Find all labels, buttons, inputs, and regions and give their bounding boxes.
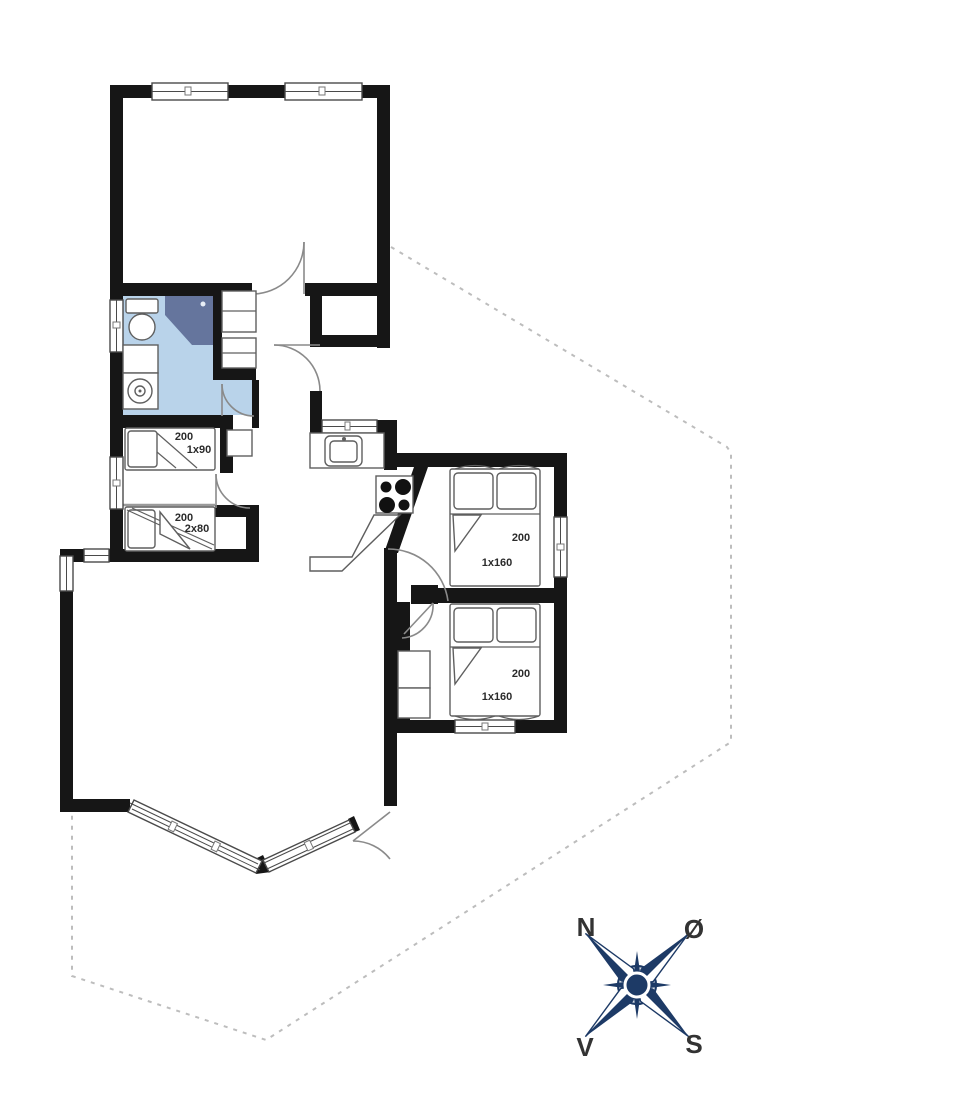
bed-length-label: 200 bbox=[512, 532, 530, 544]
entrance-door bbox=[274, 345, 320, 391]
south-bedroom-closets bbox=[398, 651, 430, 718]
bed-length-label: 200 bbox=[175, 431, 193, 443]
bed-length-label: 200 bbox=[512, 668, 530, 680]
compass-center bbox=[625, 973, 649, 997]
compass-label-south: S bbox=[685, 1029, 702, 1059]
shower-head-icon bbox=[201, 302, 206, 307]
bed-size-label: 1x160 bbox=[482, 691, 513, 703]
washing-machine-icon bbox=[123, 373, 158, 409]
toilet-icon bbox=[126, 299, 158, 340]
compass-rose bbox=[579, 927, 695, 1043]
kitchen-sink-icon bbox=[325, 436, 362, 466]
floor-plan-page: 200 1x90 200 2x80 200 1x160 200 1x160 bbox=[0, 0, 960, 1116]
stove-icon bbox=[376, 476, 413, 513]
bathroom-counter bbox=[123, 345, 158, 373]
small-bedroom-door bbox=[216, 474, 250, 508]
compass-label-east: Ø bbox=[684, 914, 704, 944]
bay-window-left bbox=[128, 800, 262, 873]
annex-door bbox=[252, 242, 304, 294]
bed-size-label: 1x90 bbox=[187, 444, 211, 456]
bay-window-right bbox=[263, 820, 355, 872]
compass-label-west: V bbox=[576, 1032, 594, 1062]
terrace-door bbox=[353, 812, 390, 859]
bed-size-label: 1x160 bbox=[482, 557, 513, 569]
compass-label-north: N bbox=[577, 912, 596, 942]
bed-size-label: 2x80 bbox=[185, 523, 209, 535]
floor-plan-drawing: 200 1x90 200 2x80 200 1x160 200 1x160 bbox=[0, 0, 960, 1116]
